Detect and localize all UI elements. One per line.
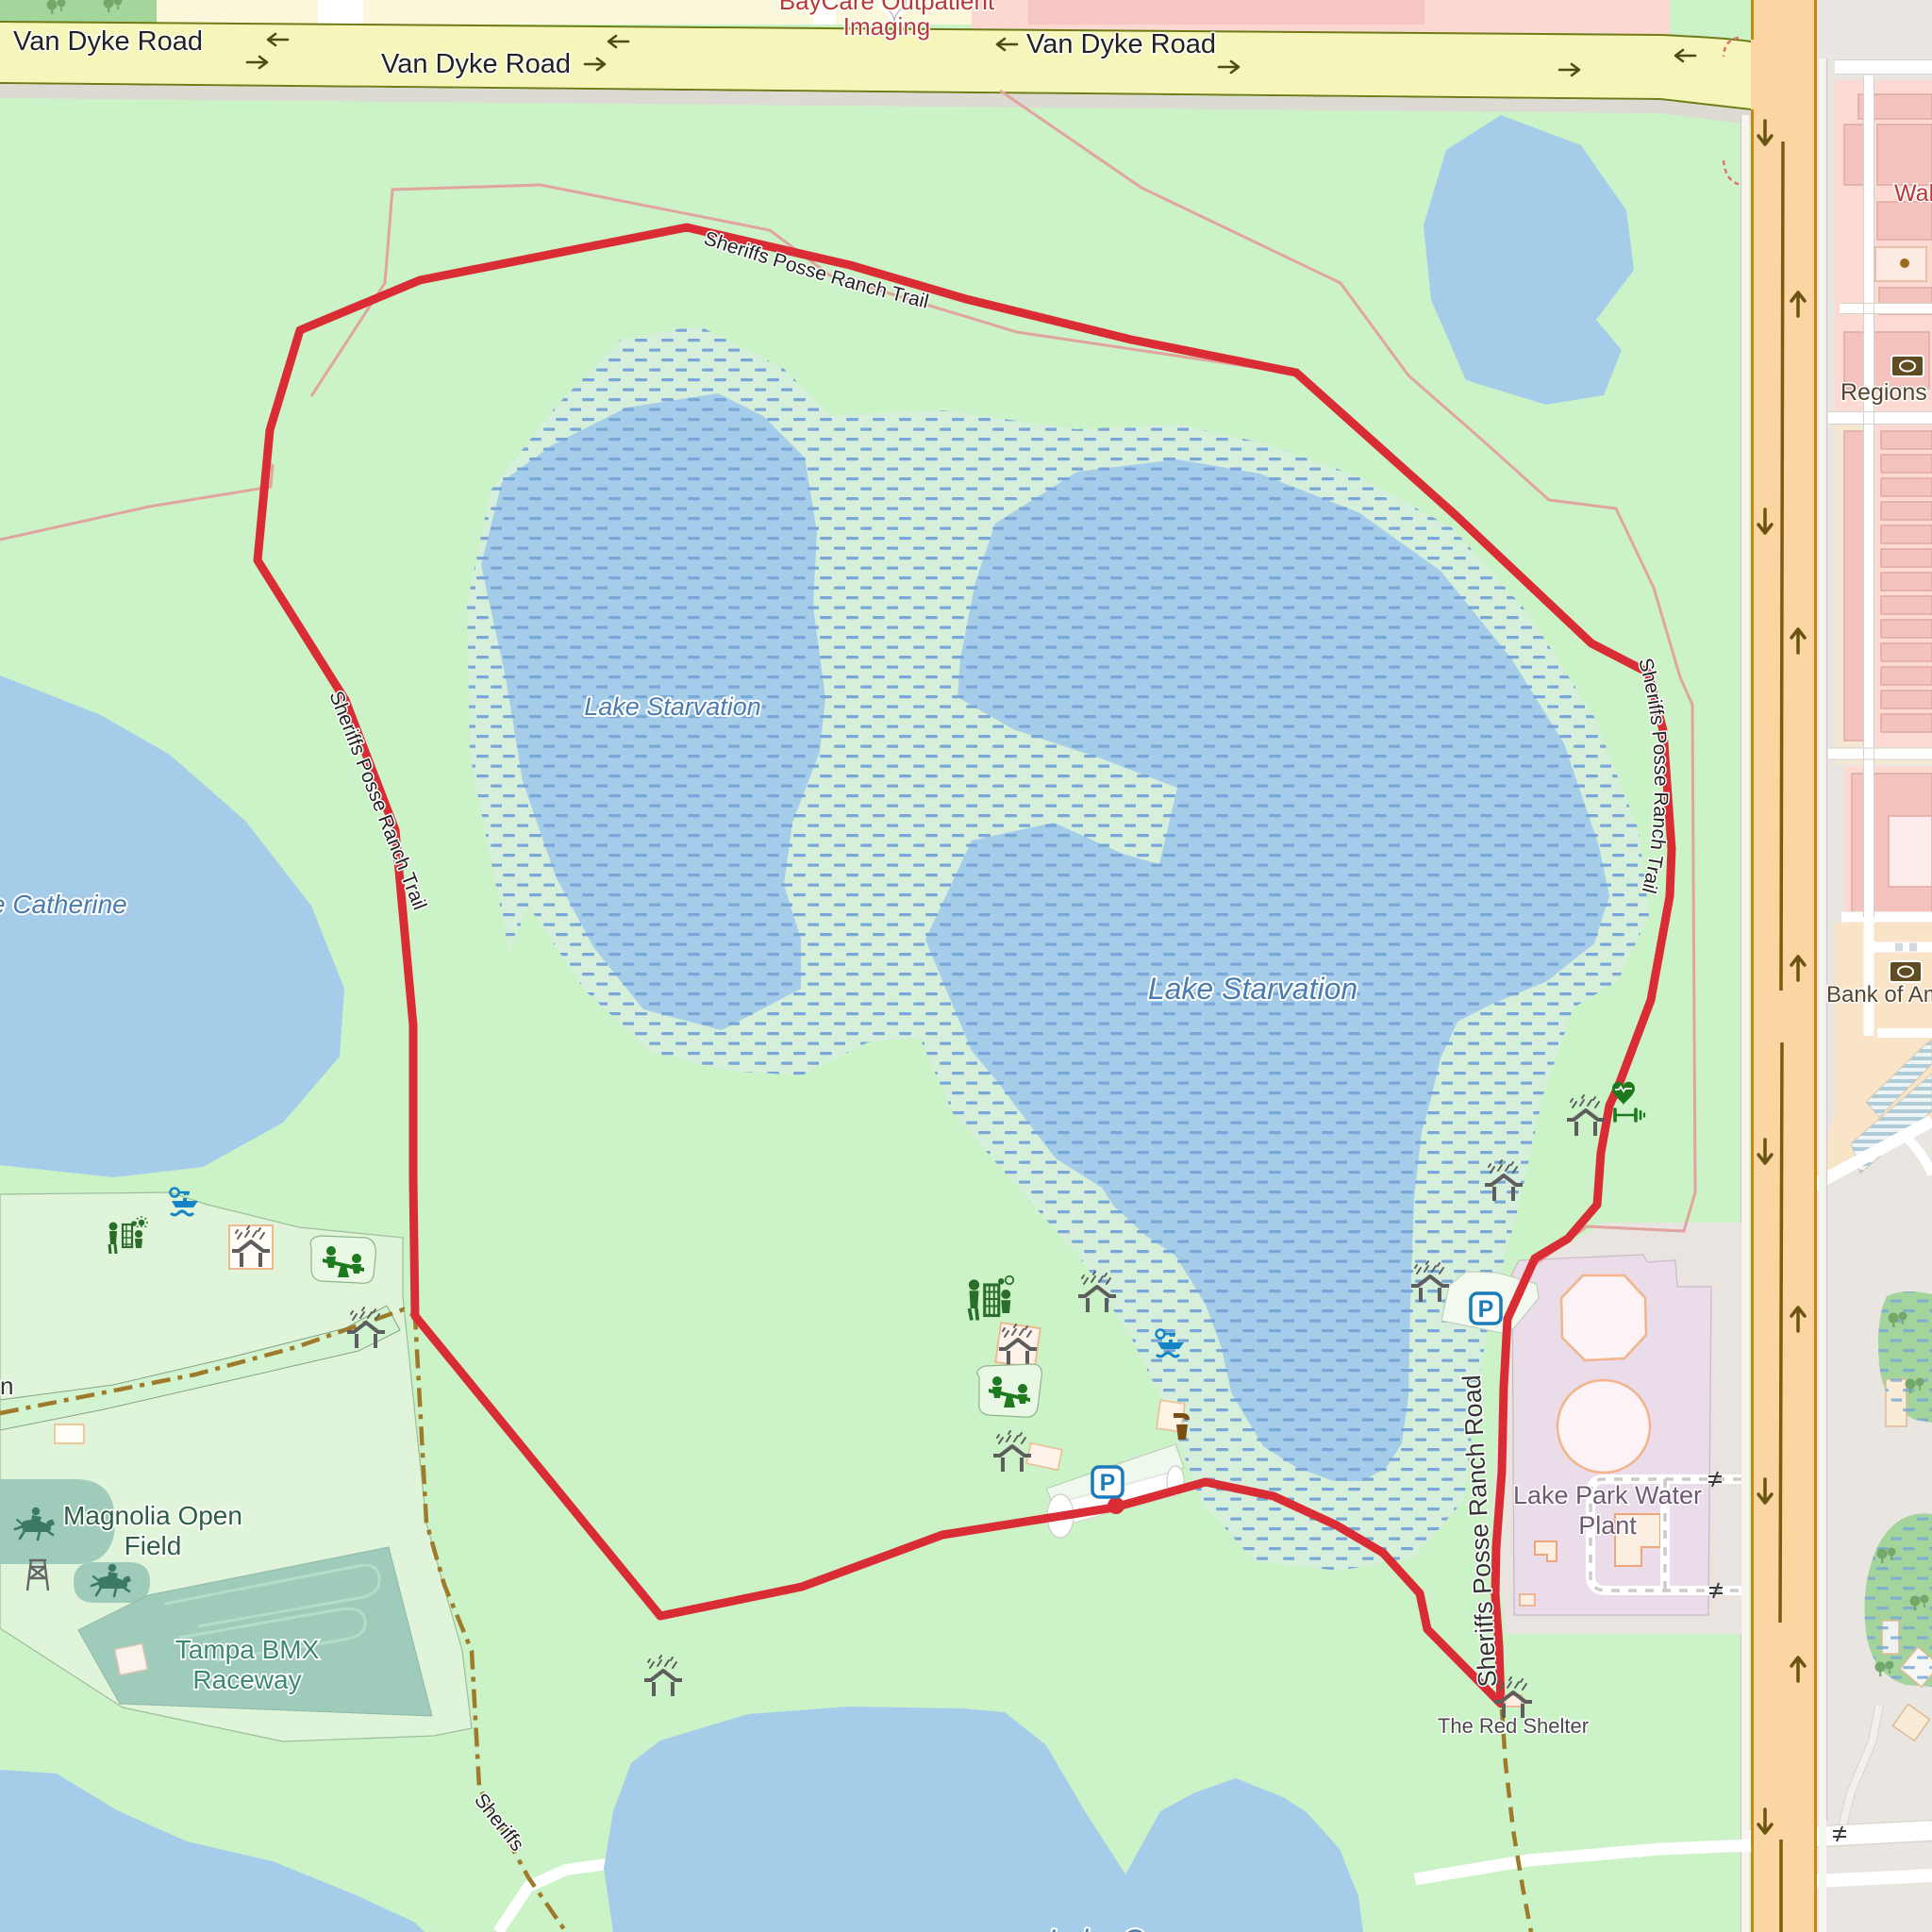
svg-text:Imaging: Imaging: [843, 12, 931, 41]
svg-text:Magnolia Open: Magnolia Open: [63, 1501, 242, 1530]
svg-text:Van Dyke Road: Van Dyke Road: [381, 49, 571, 79]
svg-text:Tampa BMX: Tampa BMX: [175, 1635, 320, 1664]
svg-text:Plant: Plant: [1578, 1511, 1637, 1540]
svg-text:Raceway: Raceway: [192, 1665, 301, 1694]
svg-text:Field: Field: [125, 1531, 182, 1560]
svg-text:Van Dyke Road: Van Dyke Road: [1026, 29, 1216, 59]
svg-text:Van Dyke Road: Van Dyke Road: [13, 26, 203, 57]
svg-text:ke Catherine: ke Catherine: [0, 890, 127, 919]
svg-text:Lake Park Water: Lake Park Water: [1513, 1481, 1702, 1509]
svg-text:Lake Starvation: Lake Starvation: [1148, 972, 1357, 1006]
svg-text:Regions B: Regions B: [1840, 379, 1932, 406]
svg-text:Wal: Wal: [1894, 180, 1932, 207]
svg-text:n: n: [0, 1372, 13, 1400]
svg-text:Lake Starvation: Lake Starvation: [584, 692, 761, 721]
svg-text:The Red Shelter: The Red Shelter: [1438, 1714, 1589, 1738]
svg-text:Lake Cayuga: Lake Cayuga: [1048, 1924, 1226, 1932]
svg-text:Bank of Am: Bank of Am: [1826, 982, 1932, 1008]
